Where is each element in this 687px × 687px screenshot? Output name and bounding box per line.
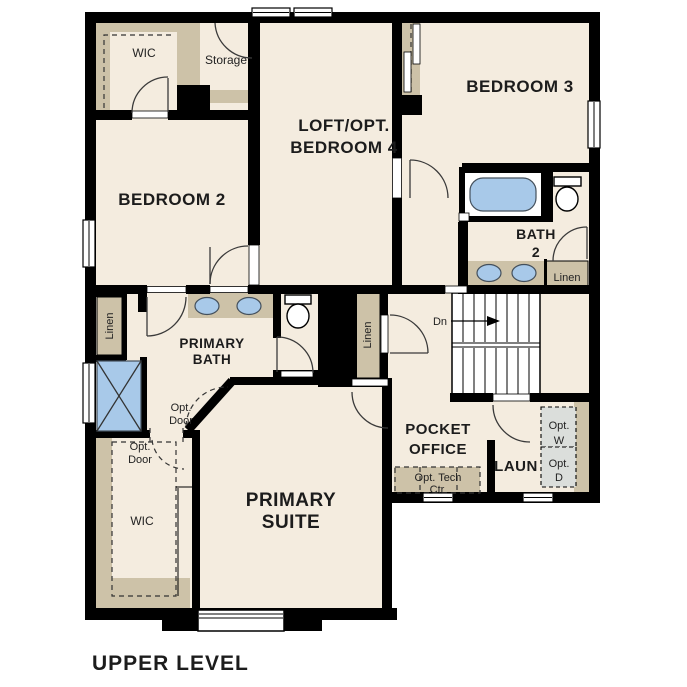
wic-bedroom2-label: WIC (132, 46, 156, 60)
primary-sink-right (237, 298, 261, 315)
opt-washer-label-line1: Opt. (549, 420, 570, 432)
opt-door-bath-label-line2: Door (169, 415, 193, 427)
opt-washer-label-line2: W (554, 435, 565, 447)
primary-bath-label-line2: BATH (193, 352, 232, 367)
bath2-label-line1: BATH (516, 226, 556, 242)
opt-dryer-label-line1: Opt. (549, 458, 570, 470)
bath2-sink-left (477, 265, 501, 282)
opt-tech-label-line1: Opt. Tech (415, 472, 462, 484)
opt-tech-label-line2: Ctr (430, 484, 445, 496)
primary-sink-left (195, 298, 219, 315)
bath2-tub (459, 167, 553, 222)
bedroom3-label: BEDROOM 3 (466, 77, 573, 96)
primary-suite-label-line2: SUITE (262, 512, 320, 533)
primary-toilet (285, 295, 311, 328)
loft-label-line2: BEDROOM 4 (290, 138, 398, 157)
shower (97, 361, 141, 431)
floor-plan-page: WIC Storage BEDROOM 2 LOFT/OPT. BEDROOM … (0, 0, 687, 687)
staircase (451, 293, 540, 397)
linen-middle-label: Linen (362, 322, 374, 349)
opt-door-wic-label-line2: Door (128, 454, 152, 466)
stairs-down-label: Dn (433, 316, 447, 328)
linen-left-label: Linen (104, 313, 116, 340)
bath2-label-line2: 2 (532, 244, 540, 260)
loft-label-line1: LOFT/OPT. (298, 116, 389, 135)
pocket-office-label-line1: POCKET (405, 421, 471, 438)
laundry-label: LAUN (494, 458, 538, 475)
opt-door-wic-label-line1: Opt. (130, 441, 151, 453)
bath2-sink-right (512, 265, 536, 282)
primary-suite-label-line1: PRIMARY (246, 490, 336, 511)
storage-label: Storage (205, 53, 247, 67)
bedroom2-label: BEDROOM 2 (118, 190, 225, 209)
floor-plan: WIC Storage BEDROOM 2 LOFT/OPT. BEDROOM … (0, 0, 687, 687)
linen-right-label: Linen (554, 272, 581, 284)
pocket-office-label-line2: OFFICE (409, 441, 467, 458)
level-title: UPPER LEVEL (92, 652, 249, 675)
primary-bath-label-line1: PRIMARY (179, 336, 244, 351)
wic-primary-label: WIC (130, 514, 154, 528)
opt-dryer-label-line2: D (555, 472, 563, 484)
bay-window (198, 610, 284, 631)
opt-door-bath-label-line1: Opt. (171, 402, 192, 414)
